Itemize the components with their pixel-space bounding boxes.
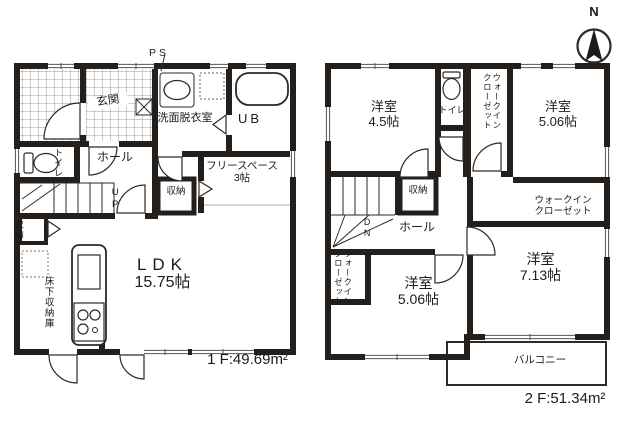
compass-north-label: N [580,5,608,20]
toilet-fixture-2f [443,72,460,100]
ldk-name: LDK [105,255,220,274]
room713-size: 7.13帖 [498,268,583,284]
floor2-area-label: 2 F:51.34m² [505,391,625,408]
freespace-name: フリースペース [200,161,284,173]
storage-left-label: 収納 [14,214,24,244]
room506tr-label: 洋室 5.06帖 [518,100,598,129]
wic-right-label: ウォークイン クローゼット [523,196,603,217]
room45-name: 洋室 [348,100,420,115]
freespace-size: 3帖 [200,173,284,185]
kitchen-fixture [72,245,106,345]
compass [570,22,618,68]
washer-fixture [200,73,224,99]
freespace-label: フリースペース 3帖 [200,161,284,185]
ps-label: PS [139,48,179,60]
wic-left-label: ウォークイン クローゼット [333,249,352,305]
toilet-2f-label: トイレ [436,105,468,115]
room506tr-name: 洋室 [518,100,598,115]
senmen-label: 洗面脱衣室 [152,112,218,124]
storage-2f-label: 収納 [402,186,434,197]
stairs-1f [20,183,114,213]
wic-top-line1: ウォークイン [491,72,500,130]
floor-plan-canvas: N PS 玄関 洗面脱衣室 UB トイレ ホール UP 収納 フリースペース 3… [0,0,637,432]
wic-left-line1: ウォークイン [342,249,351,305]
stairs-up-label: UP [109,184,120,214]
hall-1f-label: ホール [92,151,138,164]
room506bl-label: 洋室 5.06帖 [376,276,461,307]
ldk-size: 15.75帖 [105,274,220,292]
wic-top-label: ウォークイン クローゼット [482,72,501,130]
ldk-label: LDK 15.75帖 [105,255,220,292]
room45-label: 洋室 4.5帖 [348,100,420,129]
storage-left-door-triangle [48,221,60,237]
underfloor-storage-label: 床下収納庫 [42,270,53,334]
washstand-fixture [160,73,194,107]
room713-name: 洋室 [498,252,583,268]
balcony-label: バルコニー [495,355,585,367]
stairs-dn-label: DN [362,214,372,242]
hall-2f-label: ホール [392,221,442,234]
room506tr-size: 5.06帖 [518,115,598,130]
room713-label: 洋室 7.13帖 [498,252,583,283]
ub-label: UB [230,112,270,127]
wic-left-line2: クローゼット [333,249,342,305]
north-needle-icon [586,29,603,61]
storage-stairs-label: 収納 [158,187,194,198]
floor-1-plan [14,49,296,393]
wic-top-line2: クローゼット [482,72,491,130]
room45-size: 4.5帖 [348,115,420,130]
toilet-1f-label: トイレ [53,145,63,181]
genkan-x-mark [136,99,152,115]
floor1-area-label: 1 F:49.69m² [190,352,305,369]
room506bl-size: 5.06帖 [376,292,461,308]
room506bl-name: 洋室 [376,276,461,292]
bathtub-fixture [236,73,288,105]
wic-right-line2: クローゼット [523,207,603,218]
